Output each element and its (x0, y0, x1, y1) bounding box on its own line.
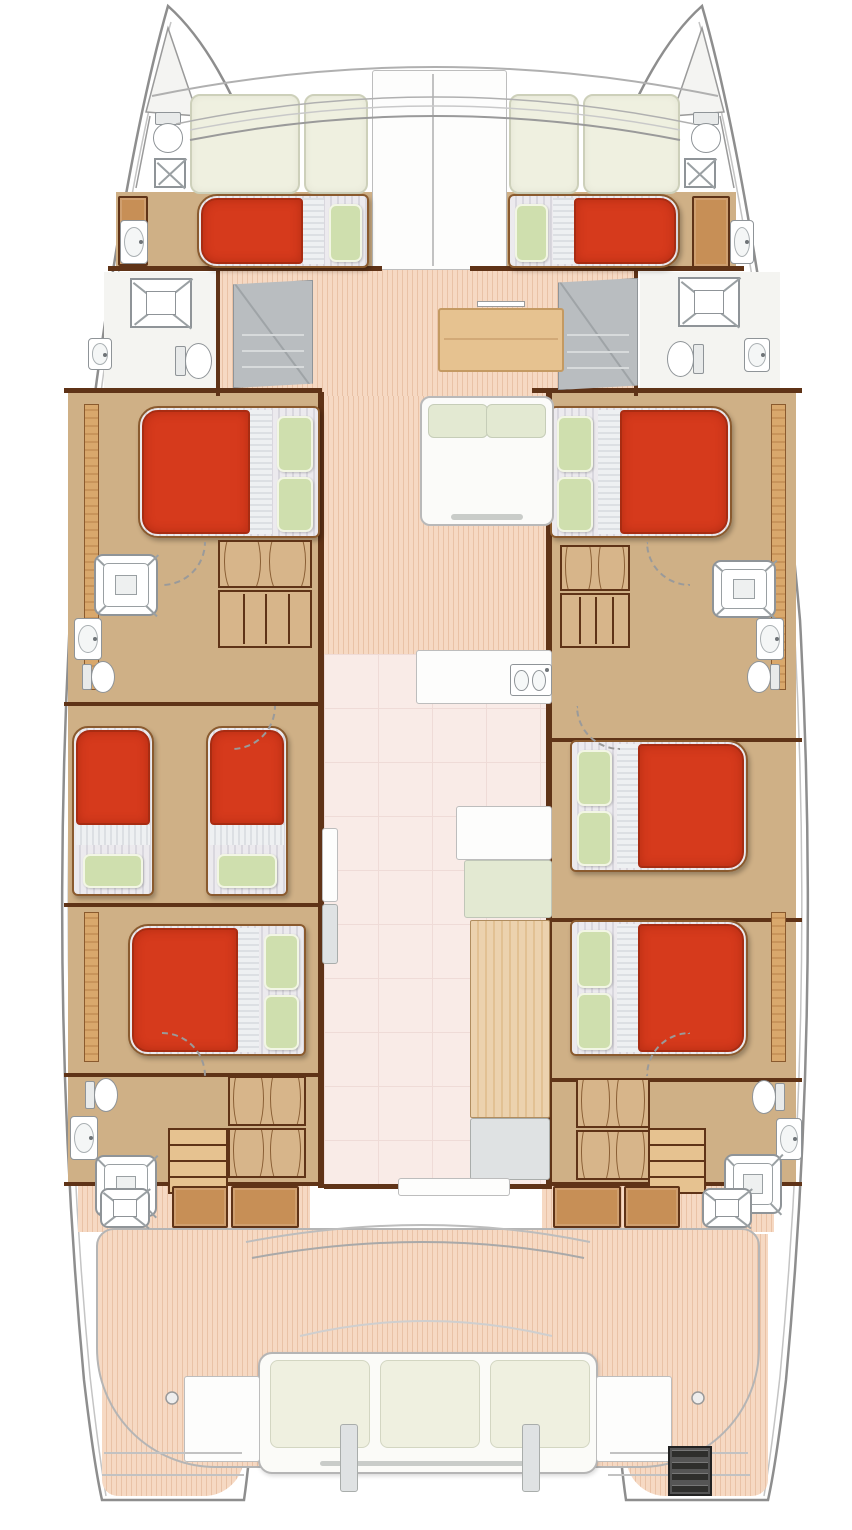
hatch-inner-pane (715, 1199, 739, 1218)
salon-port-wall (216, 268, 220, 396)
bed-sheet (303, 198, 324, 264)
ladder-rung (672, 1473, 708, 1480)
foredeck-center-door (372, 70, 507, 270)
bed-mattress (76, 730, 150, 825)
port-mid-toilet (82, 658, 116, 696)
foredeck-sunpad-1 (190, 94, 300, 194)
sink-faucet (93, 637, 97, 641)
foredeck-sunpad-2 (304, 94, 368, 194)
stbd-mid-toilet (746, 658, 780, 696)
stbd-aft-wardrobe-1 (576, 1078, 650, 1128)
bed-pillow (577, 811, 612, 867)
sink-faucet (775, 637, 779, 641)
stbd-aft-stairs (648, 1128, 706, 1194)
companionway-step (242, 350, 304, 352)
bed-pillow (557, 477, 593, 533)
cockpit-bench-wing-stbd (596, 1376, 672, 1462)
stbd-aft-side-shelf (771, 912, 786, 1062)
port-forepeak-toilet (150, 112, 186, 154)
stbd-companionway-steps (558, 278, 638, 390)
foredeck-door-mullion (432, 74, 434, 266)
hanging-clothes-arc (565, 545, 593, 591)
stbd-mid-wardrobe (560, 545, 630, 591)
bed-sheet (76, 825, 150, 845)
foredeck-sunpad-4 (583, 94, 680, 194)
swim-ladder (668, 1446, 712, 1496)
bed-pillow (329, 204, 362, 262)
bed-mattress (638, 744, 744, 868)
companionway-step (567, 334, 629, 336)
salon-settee (420, 396, 554, 526)
hanging-clothes-arc (581, 1130, 610, 1180)
port-forepeak-sink (120, 220, 148, 264)
bed-mattress (201, 198, 303, 264)
hanging-clothes-arc (224, 540, 262, 588)
hatch-cross-line (687, 162, 716, 189)
hatch-cross-line (157, 162, 186, 189)
stbd-stern-deck-hatch (702, 1188, 752, 1228)
sink-bowl (532, 670, 546, 691)
stbd-cabin4-bed (570, 920, 748, 1056)
bench-cushion (380, 1360, 480, 1448)
stbd-mid-cabin-bed (550, 406, 732, 538)
port-companionway-steps (233, 280, 313, 388)
toilet-tank (693, 344, 704, 373)
galley-island (456, 806, 552, 860)
stair-step (650, 1130, 704, 1146)
port-twin-bulkhead (64, 702, 320, 706)
hatch-inner-pane (694, 290, 724, 314)
bed-mattress (132, 928, 238, 1052)
toilet-bowl (691, 123, 722, 153)
shelf-divider (579, 597, 581, 644)
shelf-divider (288, 594, 290, 644)
port-mid-sink (74, 618, 102, 660)
foredeck-sunpad-3 (509, 94, 579, 194)
toilet-bowl (667, 341, 694, 377)
hanging-clothes-arc (233, 1076, 264, 1126)
toilet-bowl (94, 1078, 119, 1112)
sink-faucet (89, 1136, 93, 1140)
port-aft-side-shelf (84, 912, 99, 1062)
bed-mattress (142, 410, 250, 534)
port-aft-sink (70, 1116, 98, 1160)
stbd-mid-sink (756, 618, 784, 660)
stbd-mid-shower (712, 560, 776, 618)
bed-pillow (577, 993, 612, 1051)
port-transom-step-line-2 (102, 1474, 244, 1476)
toilet-tank (775, 1083, 785, 1111)
port-mid-shelves (218, 590, 312, 648)
stbd-aft-wardrobe-2 (576, 1130, 650, 1180)
galley-sink (510, 664, 552, 696)
port-mid-bulkhead (64, 388, 322, 393)
hanging-clothes-arc (581, 1078, 610, 1128)
stbd-aft-toilet (751, 1077, 785, 1117)
bed-sheet (250, 410, 272, 534)
port-twin-bed-2 (206, 726, 288, 896)
shower-drain (733, 579, 755, 598)
bed-sheet (238, 928, 259, 1052)
shelf-divider (612, 597, 614, 644)
hanging-clothes-arc (616, 1078, 645, 1128)
stbd-cabin3-bed (570, 740, 748, 872)
toilet-bowl (752, 1080, 777, 1114)
bed-sheet (210, 825, 284, 845)
stbd-forepeak-sink (730, 220, 754, 264)
stbd-forward-berth (508, 194, 680, 268)
sink-faucet (545, 668, 549, 672)
bed-sheet (617, 924, 638, 1052)
port-stern-deck-hatch (100, 1188, 150, 1228)
ladder-rung (672, 1485, 708, 1492)
galley-wood-counter (470, 920, 550, 1118)
companionway-step (242, 366, 304, 368)
ladder-rung (672, 1462, 708, 1469)
stbd-forepeak-hatch (684, 158, 716, 188)
companionway-step (242, 334, 304, 336)
stair-step (170, 1130, 226, 1146)
bed-mattress (638, 924, 744, 1052)
hatch-cross-line (688, 158, 717, 185)
hanging-clothes-arc (616, 1130, 645, 1180)
hanging-clothes-arc (233, 1128, 264, 1178)
hanging-clothes-arc (598, 545, 626, 591)
salon-table (438, 308, 564, 372)
port-twin-bed-1 (72, 726, 154, 896)
hatch-cross-line (158, 158, 187, 185)
shelf-divider (243, 594, 245, 644)
hatch-inner-pane (146, 291, 176, 315)
companionway-step (567, 351, 629, 353)
stair-step (650, 1146, 704, 1162)
stair-step (170, 1146, 226, 1162)
cockpit-bench-wing-port (184, 1376, 260, 1462)
hanging-clothes-arc (270, 1076, 301, 1126)
bed-pillow (264, 934, 299, 990)
stbd-forepeak-toilet (688, 112, 724, 154)
bed-sheet (553, 198, 574, 264)
cockpit-hatch-strip-stbd (522, 1424, 540, 1492)
port-mid-shower (94, 554, 158, 616)
cockpit-aft-bench (258, 1352, 598, 1474)
bed-sheet (617, 744, 638, 868)
sink-bowl (514, 670, 528, 691)
port-forward-berth (197, 194, 369, 268)
stbd-forward-head-toilet (666, 338, 704, 380)
port-mid-cabin-bed (138, 406, 320, 538)
catamaran-floor-plan (0, 0, 852, 1530)
stbd-forward-head-sink (744, 338, 770, 372)
stbd-stern-cabinet-2 (624, 1186, 680, 1228)
sink-faucet (139, 240, 143, 244)
stbd-forward-wardrobe (692, 196, 730, 268)
stair-step (170, 1162, 226, 1178)
port-forepeak-hatch (154, 158, 186, 188)
stbd-mid-shelves (560, 593, 630, 648)
settee-front-rail (451, 514, 524, 520)
bed-sheet (598, 410, 620, 534)
port-forward-head-sink (88, 338, 112, 370)
port-forward-head-toilet (175, 340, 213, 382)
bed-mattress (574, 198, 676, 264)
port-forward-head-hatch (130, 278, 192, 328)
settee-back-cushion (428, 404, 488, 438)
bed-pillow (83, 854, 143, 888)
stbd-forward-head-hatch (678, 277, 740, 327)
hatch-inner-pane (113, 1199, 137, 1218)
port-aft-cabin-bulkhead (64, 903, 320, 907)
bench-cushion (490, 1360, 590, 1448)
galley-aft-unit (470, 1118, 550, 1180)
galley-island-2 (464, 860, 552, 918)
port-aft-wardrobe-2 (228, 1128, 306, 1178)
port-stern-cabinet-1 (172, 1186, 228, 1228)
port-stern-cabinet-2 (231, 1186, 299, 1228)
bed-pillow (217, 854, 277, 888)
cockpit-door (398, 1178, 510, 1196)
port-aft-toilet (85, 1075, 119, 1115)
shelf-divider (595, 597, 597, 644)
port-aft-wardrobe-1 (228, 1076, 306, 1126)
toilet-bowl (185, 343, 212, 379)
toilet-bowl (153, 123, 184, 153)
bed-pillow (557, 416, 593, 472)
bed-pillow (577, 750, 612, 806)
bed-pillow (277, 416, 313, 472)
cockpit-hatch-strip-port (340, 1424, 358, 1492)
port-side-unit (322, 828, 338, 902)
toilet-bowl (91, 661, 116, 694)
companionway-step (567, 367, 629, 369)
stbd-aft-sink (776, 1118, 802, 1160)
port-aft-cabin-bed (128, 924, 306, 1056)
bed-pillow (577, 930, 612, 988)
port-mid-wardrobe (218, 540, 312, 588)
toilet-tank (770, 664, 780, 691)
port-side-unit-2 (322, 904, 338, 964)
bed-pillow (277, 477, 313, 533)
stair-step (650, 1162, 704, 1178)
port-transom-step-line-1 (104, 1452, 242, 1454)
shelf-divider (265, 594, 267, 644)
shower-drain (115, 575, 137, 596)
toilet-bowl (747, 661, 772, 694)
stbd-stern-cabinet-1 (553, 1186, 621, 1228)
settee-back-cushion (486, 404, 546, 438)
port-aft-stairs (168, 1128, 228, 1194)
hanging-clothes-arc (269, 540, 307, 588)
bed-mattress (620, 410, 728, 534)
bed-pillow (264, 995, 299, 1051)
ladder-rung (672, 1450, 708, 1457)
hanging-clothes-arc (270, 1128, 301, 1178)
bed-pillow (515, 204, 548, 262)
